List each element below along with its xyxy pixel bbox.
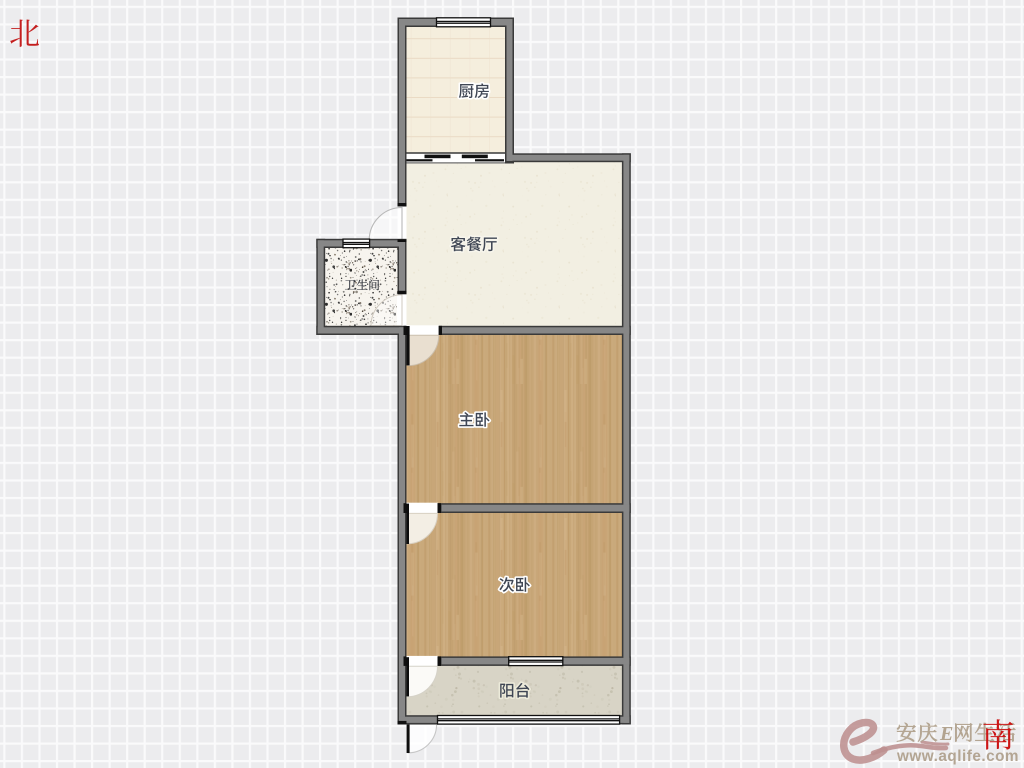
svg-text:E: E	[939, 723, 953, 745]
svg-text:www.aqlife.com: www.aqlife.com	[896, 748, 1019, 765]
